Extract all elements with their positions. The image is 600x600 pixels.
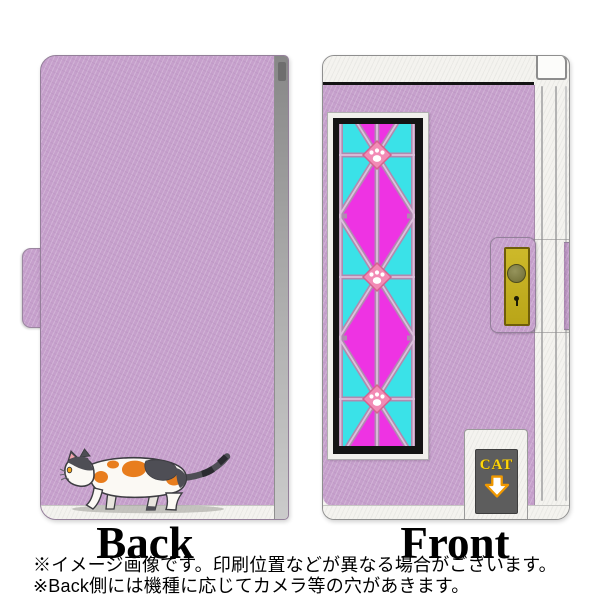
stained-glass-paw-pattern	[339, 124, 415, 446]
front-top-band	[323, 56, 534, 85]
back-case	[40, 55, 289, 520]
cat-door-panel: CAT	[475, 449, 518, 514]
note-line-1: ※イメージ画像です。印刷位置などが異なる場合がございます。	[33, 555, 593, 576]
clasp-button	[507, 264, 526, 283]
disclaimer-notes: ※イメージ画像です。印刷位置などが異なる場合がございます。 ※Back側には機種…	[33, 555, 593, 597]
clasp-tab-end	[564, 242, 570, 330]
spine-top-window	[536, 55, 567, 80]
front-case: CAT	[322, 55, 570, 520]
back-spine-notch	[278, 62, 286, 81]
clasp-keyhole	[514, 296, 519, 301]
arrow-down-icon	[484, 475, 510, 498]
clasp-buckle-plate	[504, 247, 530, 326]
calico-cat-illustration	[59, 448, 236, 516]
cat-door-frame: CAT	[464, 429, 528, 519]
note-line-2: ※Back側には機種に応じてカメラ等の穴があきます。	[33, 576, 593, 597]
product-image: CAT Back Front ※イメージ画像です。印刷位置などが異なる場合がござ…	[0, 0, 600, 600]
cat-door-label: CAT	[476, 457, 517, 474]
stained-glass-window-frame	[327, 112, 429, 460]
back-spine-band	[274, 56, 288, 519]
clasp-base	[490, 237, 536, 333]
